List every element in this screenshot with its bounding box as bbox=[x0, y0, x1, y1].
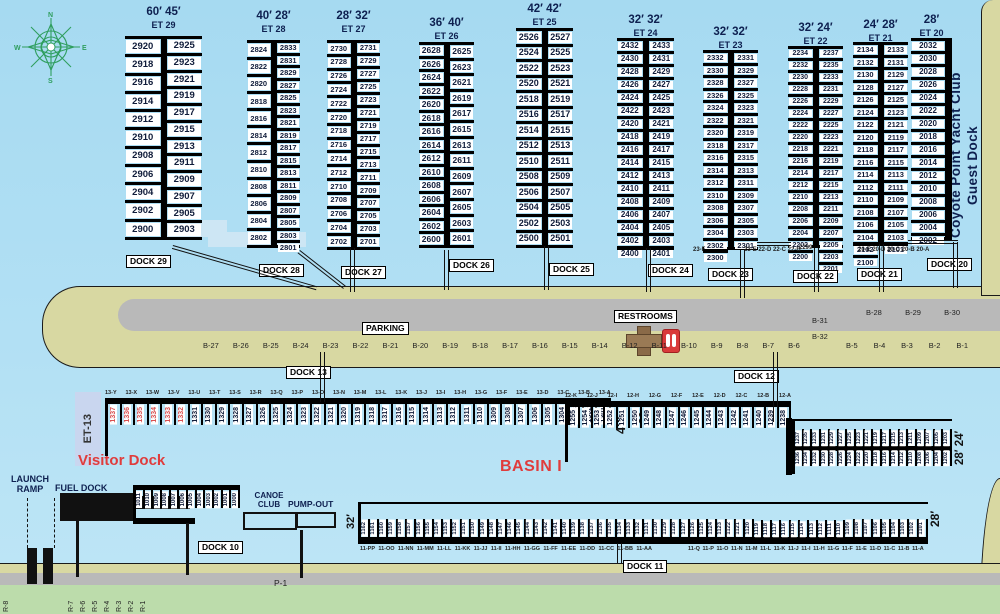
slip-number: 2229 bbox=[820, 98, 843, 105]
slip-number: 1248 bbox=[656, 408, 663, 428]
slip-number: 2918 bbox=[126, 58, 160, 71]
slip-number: 2728 bbox=[328, 58, 350, 67]
slip-cell: 2517 bbox=[548, 106, 574, 122]
slip-number: 2217 bbox=[820, 170, 843, 177]
slip-cell: 1308 bbox=[502, 404, 516, 425]
slip-number: 2316 bbox=[704, 154, 727, 162]
slip-cell: 1331 bbox=[190, 404, 204, 425]
slip-number: 1011 bbox=[136, 491, 142, 508]
slip-cell: 2718 bbox=[327, 123, 351, 137]
slip-number: 1006 bbox=[180, 491, 186, 508]
slip-number: 1306 bbox=[532, 405, 539, 425]
slip-cell: 1132 bbox=[635, 519, 644, 537]
slip-cell: 1111 bbox=[827, 520, 836, 537]
slip-number: 2710 bbox=[328, 182, 350, 191]
slip-number: 2807 bbox=[278, 207, 300, 215]
slip-number: 2030 bbox=[912, 55, 944, 63]
slip-cell: 1246 bbox=[680, 407, 692, 428]
slip-letter-label: 11-H bbox=[813, 546, 825, 552]
slip-letter-label: 11-J bbox=[788, 546, 799, 552]
slip-cell: 2120 bbox=[853, 130, 878, 143]
slip-cell: 2213 bbox=[819, 190, 844, 202]
comb-dock: 1255125412531252125112501249124812471246… bbox=[565, 401, 791, 462]
slip-cell: 2621 bbox=[450, 73, 475, 89]
slip-cell: 2618 bbox=[419, 110, 444, 124]
slip-cell: 2721 bbox=[357, 105, 381, 118]
slip-cell: 2308 bbox=[703, 200, 728, 213]
slip-cell: 2717 bbox=[357, 131, 381, 144]
b-spot-label: B-2 bbox=[929, 341, 941, 350]
slip-letter-label: 13-E bbox=[516, 390, 528, 396]
slip-number: 1220 bbox=[865, 450, 871, 466]
slip-cell: 2413 bbox=[649, 168, 675, 181]
b-spot-label: B-15 bbox=[562, 341, 578, 350]
dock-width-header: 60′ 45′ bbox=[107, 6, 220, 18]
slip-number: 2417 bbox=[650, 146, 674, 154]
walkway bbox=[773, 352, 778, 422]
slip-cell: 2403 bbox=[649, 233, 675, 246]
slip-cell: 2219 bbox=[819, 154, 844, 166]
slip-cell: 1001 bbox=[223, 490, 232, 508]
slip-number: 2331 bbox=[735, 54, 758, 62]
slip-cell: 2105 bbox=[884, 217, 909, 230]
slip-number: 2818 bbox=[248, 95, 270, 107]
b-spot-label: B-16 bbox=[532, 341, 548, 350]
slip-number: 2708 bbox=[328, 196, 350, 205]
slip-cell: 1322 bbox=[312, 404, 326, 425]
b-spot-label: B-32 bbox=[812, 329, 828, 345]
slip-number: 1132 bbox=[636, 520, 642, 537]
slip-cell: 1252 bbox=[605, 407, 617, 428]
dock-slip-columns: 2526252425222520251825162514251225102508… bbox=[516, 28, 573, 248]
slip-number: 2919 bbox=[168, 90, 202, 102]
slip-number: 2117 bbox=[885, 146, 908, 154]
slip-number: 1305 bbox=[545, 405, 552, 425]
slip-number: 2116 bbox=[854, 159, 877, 167]
slip-number: 1111 bbox=[828, 521, 834, 537]
b-spot-label: B-3 bbox=[901, 341, 913, 350]
slip-cell: 2216 bbox=[788, 154, 813, 166]
slip-number: 2517 bbox=[549, 110, 573, 121]
slip-letter-label: 11-F bbox=[842, 546, 853, 552]
slip-number: 1331 bbox=[192, 405, 199, 425]
pier-pile bbox=[76, 521, 79, 577]
slip-number: 2900 bbox=[126, 223, 160, 236]
slip-cell: 2430 bbox=[617, 51, 643, 64]
slip-number: 2717 bbox=[358, 135, 380, 143]
slip-number: 2913 bbox=[168, 141, 202, 153]
slip-cell: 2313 bbox=[734, 163, 759, 176]
slip-number: 2207 bbox=[820, 230, 843, 237]
slip-cell: 2104 bbox=[853, 230, 878, 243]
r-spot-label: R-8 bbox=[3, 588, 10, 612]
slip-number: 2016 bbox=[912, 146, 944, 154]
slip-number: 2026 bbox=[912, 81, 944, 89]
slip-number: 1233 bbox=[813, 430, 819, 446]
slip-number: 1149 bbox=[481, 520, 487, 537]
slip-cell: 2326 bbox=[703, 88, 728, 101]
slip-cell: 2821 bbox=[277, 115, 301, 128]
slip-cell: 2131 bbox=[884, 55, 909, 68]
slip-cell: 2705 bbox=[357, 208, 381, 221]
slip-number: 2234 bbox=[789, 50, 812, 57]
slip-number: 1208 bbox=[918, 450, 924, 466]
slip-cell: 1335 bbox=[135, 404, 149, 425]
slip-letter-label: 13-U bbox=[188, 390, 200, 396]
slip-cell: 2617 bbox=[450, 104, 475, 120]
slip-cell: 2309 bbox=[734, 188, 759, 201]
slip-cell: 2129 bbox=[884, 67, 909, 80]
slip-number: 1153 bbox=[444, 520, 450, 537]
comb-dock: 1162116111601159115811571156115511541153… bbox=[358, 502, 928, 544]
slip-cell: 2500 bbox=[516, 230, 542, 246]
slip-cell: 2416 bbox=[617, 142, 643, 155]
slip-cell: 2317 bbox=[734, 138, 759, 151]
slip-cell: 1005 bbox=[188, 490, 197, 508]
slip-cell: 1311 bbox=[461, 404, 475, 424]
slip-cell: 2405 bbox=[649, 220, 675, 233]
slip-cell: 2605 bbox=[450, 198, 475, 214]
slip-number: 2006 bbox=[912, 211, 944, 219]
slip-cell: 2126 bbox=[853, 92, 878, 105]
slip-cell: 2223 bbox=[819, 130, 844, 142]
b-spot-label: B-1 bbox=[956, 341, 968, 350]
slip-number: 2230 bbox=[789, 74, 812, 81]
slip-cell: 2225 bbox=[819, 118, 844, 130]
slip-cell: 2320 bbox=[703, 125, 728, 138]
slip-cell: 2819 bbox=[277, 128, 301, 141]
slip-teeth-row: 1337133613351334133313321331133013291328… bbox=[105, 404, 611, 456]
slip-cell: 2006 bbox=[911, 207, 945, 220]
slip-cell: 1249 bbox=[642, 407, 654, 428]
slip-cell: 2424 bbox=[617, 90, 643, 103]
slip-number: 2014 bbox=[912, 159, 944, 167]
slip-letter-label: 13-M bbox=[354, 390, 367, 396]
dock-name-label: DOCK 27 bbox=[341, 266, 386, 279]
slip-number: 1143 bbox=[535, 520, 541, 537]
slip-cell: 2208 bbox=[788, 202, 813, 214]
slip-cell: 2418 bbox=[617, 129, 643, 142]
dock-et-label: ET 27 bbox=[317, 24, 390, 34]
slip-cell: 2312 bbox=[703, 175, 728, 188]
slip-cell: 2004 bbox=[911, 220, 945, 233]
slip-number: 2130 bbox=[854, 71, 877, 79]
slip-number: 2613 bbox=[451, 140, 474, 151]
slip-number: 2619 bbox=[451, 93, 474, 104]
right-shore bbox=[981, 0, 1000, 296]
dock-slip-columns: 2920291829162914291229102908290629042902… bbox=[125, 36, 202, 240]
dock-slip-columns: 2332233023282326232423222320231823162314… bbox=[703, 50, 758, 250]
dock-width-header: 32′ 32′ bbox=[599, 14, 692, 26]
slip-number: 2703 bbox=[358, 225, 380, 233]
slip-number: 2915 bbox=[168, 124, 202, 136]
slip-number: 2808 bbox=[248, 181, 270, 193]
dock-slip-columns: 2628262626242622262026182616261426122610… bbox=[419, 42, 474, 248]
slip-number: 2422 bbox=[618, 107, 642, 115]
slip-number: 2521 bbox=[549, 79, 573, 90]
slip-cell: 2330 bbox=[703, 63, 728, 76]
slip-cell: 1149 bbox=[480, 519, 489, 537]
slip-cell: 2704 bbox=[327, 219, 351, 233]
slip-number: 2626 bbox=[420, 60, 443, 69]
slip-number: 1231 bbox=[822, 430, 828, 446]
slip-cell: 2134 bbox=[853, 42, 878, 55]
comb-dock: 1011101010091008100710061005100410031002… bbox=[133, 485, 240, 523]
slip-number: 1308 bbox=[505, 405, 512, 425]
slip-number: 2618 bbox=[420, 114, 443, 123]
slip-cell: 1120 bbox=[745, 519, 754, 537]
slip-number: 2518 bbox=[517, 94, 541, 105]
b-spot-label: B-22 bbox=[353, 341, 369, 350]
slip-letter-label: 11-DD bbox=[580, 546, 596, 552]
slip-number: 2806 bbox=[248, 198, 270, 210]
slip-number: 1154 bbox=[435, 520, 441, 537]
slip-number: 2423 bbox=[650, 107, 674, 115]
slip-number: 2620 bbox=[420, 100, 443, 109]
slip-number: 2129 bbox=[885, 71, 908, 79]
slip-number: 2600 bbox=[420, 235, 443, 244]
dock-footer-label: 23-F bbox=[693, 247, 705, 253]
slip-number: 2214 bbox=[789, 170, 812, 177]
slip-number: 2704 bbox=[328, 223, 350, 232]
slip-cell: 1004 bbox=[197, 490, 206, 508]
slip-number: 2211 bbox=[820, 206, 843, 213]
slip-cell: 2212 bbox=[788, 178, 813, 190]
slip-cell: 2220 bbox=[788, 130, 813, 142]
slip-cell: 1127 bbox=[681, 519, 690, 537]
slip-cell: 1107 bbox=[864, 519, 873, 537]
slip-number: 2506 bbox=[517, 187, 541, 198]
slip-number: 2719 bbox=[358, 122, 380, 130]
slip-cell: 1227 bbox=[839, 429, 848, 446]
slip-number: 2512 bbox=[517, 141, 541, 152]
slip-number: 2424 bbox=[618, 94, 642, 102]
slip-cell: 2917 bbox=[167, 103, 203, 120]
slip-number: 1107 bbox=[864, 520, 870, 537]
dock-name-label: DOCK 23 bbox=[708, 268, 753, 281]
slip-number: 1250 bbox=[632, 408, 639, 428]
walkway bbox=[320, 352, 325, 402]
slip-number: 2328 bbox=[704, 79, 727, 87]
slip-cell: 1114 bbox=[800, 520, 809, 537]
slip-cell: 1334 bbox=[149, 404, 163, 425]
slip-cell: 2920 bbox=[125, 36, 161, 54]
slip-number: 2515 bbox=[549, 125, 573, 136]
slip-number: 1326 bbox=[260, 405, 267, 425]
slip-cell: 1007 bbox=[171, 490, 180, 508]
slip-column: 2433243124292427242524232421241924172415… bbox=[649, 38, 675, 250]
slip-cell: 2804 bbox=[247, 211, 271, 228]
slip-cell: 1003 bbox=[205, 490, 214, 508]
slip-number: 1310 bbox=[477, 405, 484, 425]
slip-column: 2628262626242622262026182616261426122610… bbox=[419, 42, 444, 248]
dock-name-label: DOCK 24 bbox=[648, 264, 693, 277]
slip-cell: 2623 bbox=[450, 58, 475, 74]
slip-number: 2817 bbox=[278, 144, 300, 152]
slip-cell: 2118 bbox=[853, 142, 878, 155]
slip-number: 1002 bbox=[214, 491, 220, 508]
slip-cell: 1008 bbox=[162, 490, 171, 508]
slip-cell: 2608 bbox=[419, 177, 444, 191]
slip-number: 2917 bbox=[168, 107, 202, 119]
slip-cell: 2925 bbox=[167, 36, 203, 53]
slip-number: 2431 bbox=[650, 55, 674, 63]
slip-number: 2923 bbox=[168, 57, 202, 69]
slip-number: 2603 bbox=[451, 218, 474, 229]
slip-number: 1244 bbox=[706, 408, 713, 428]
slip-number: 2223 bbox=[820, 134, 843, 141]
slip-cell: 2100 bbox=[853, 255, 878, 268]
slip-number: 2308 bbox=[704, 204, 727, 212]
slip-number: 1237 bbox=[796, 430, 802, 446]
b-spot-label: B-6 bbox=[788, 341, 800, 350]
slip-number: 2319 bbox=[735, 129, 758, 137]
slip-cell: 1154 bbox=[434, 519, 443, 537]
slip-number: 1142 bbox=[544, 520, 550, 537]
slip-cell: 2825 bbox=[277, 90, 301, 103]
slip-number: 1136 bbox=[599, 520, 605, 537]
slip-cell: 1307 bbox=[516, 404, 530, 425]
slip-cell: 2729 bbox=[357, 53, 381, 66]
slip-number: 2612 bbox=[420, 154, 443, 163]
slip-number: 1005 bbox=[188, 491, 194, 508]
slip-cell: 2626 bbox=[419, 56, 444, 70]
slip-cell: 2814 bbox=[247, 125, 271, 142]
dock-et-label: ET 28 bbox=[237, 24, 310, 34]
slip-cell: 2204 bbox=[788, 226, 813, 238]
slip-cell: 2431 bbox=[649, 51, 675, 64]
slip-number: 1255 bbox=[570, 408, 577, 428]
slip-number: 1148 bbox=[490, 520, 496, 537]
slip-number: 2916 bbox=[126, 77, 160, 90]
slip-number: 2012 bbox=[912, 172, 944, 180]
slip-number: 2524 bbox=[517, 48, 541, 59]
slip-number: 1204 bbox=[935, 450, 941, 466]
slip-cell: 2720 bbox=[327, 109, 351, 123]
slip-letter-label: 11-FF bbox=[543, 546, 557, 552]
slip-number: 2126 bbox=[854, 96, 877, 104]
slip-cell: 2719 bbox=[357, 118, 381, 131]
slip-number: 1109 bbox=[846, 520, 852, 537]
slip-cell: 2425 bbox=[649, 90, 675, 103]
slip-number: 2801 bbox=[278, 244, 300, 252]
slip-cell: 2708 bbox=[327, 192, 351, 206]
slip-cell: 2415 bbox=[649, 155, 675, 168]
slip-number: 2718 bbox=[328, 127, 350, 136]
b-spots-mid: B-31B-32 bbox=[812, 313, 828, 345]
slip-cell: 2323 bbox=[734, 100, 759, 113]
slip-number: 2716 bbox=[328, 141, 350, 150]
slip-cell: 1240 bbox=[754, 407, 766, 428]
slip-cell: 1327 bbox=[244, 404, 258, 425]
slip-number: 2903 bbox=[168, 224, 202, 236]
slip-cell: 1119 bbox=[754, 520, 763, 537]
slip-column: 2824282228202818281628142812281028082806… bbox=[247, 40, 271, 248]
slip-cell: 2218 bbox=[788, 142, 813, 154]
dock-footer-label: 23-E 22-D 22-C 22-B bbox=[744, 247, 801, 253]
slip-number: 2727 bbox=[358, 70, 380, 78]
slip-cell: 1148 bbox=[489, 519, 498, 537]
slip-cell: 2421 bbox=[649, 116, 675, 129]
slip-number: 2133 bbox=[885, 46, 908, 54]
slip-cell: 1205 bbox=[935, 429, 944, 446]
slip-cell: 2612 bbox=[419, 150, 444, 164]
slip-cell: 2525 bbox=[548, 44, 574, 60]
b-spot-label: B-27 bbox=[203, 341, 219, 350]
slip-number: 2312 bbox=[704, 179, 727, 187]
slip-cell: 2601 bbox=[450, 229, 475, 245]
slip-cell: 1211 bbox=[908, 429, 917, 446]
slip-cell: 2020 bbox=[911, 116, 945, 129]
slip-number: 2606 bbox=[420, 195, 443, 204]
slip-cell: 2106 bbox=[853, 217, 878, 230]
slip-number: 2203 bbox=[820, 254, 843, 261]
slip-number: 1147 bbox=[499, 520, 505, 537]
slip-cell: 1128 bbox=[672, 519, 681, 537]
slip-cell: 2918 bbox=[125, 54, 161, 72]
slip-cell: 1104 bbox=[891, 519, 900, 537]
slip-cell: 2410 bbox=[617, 181, 643, 194]
slip-cell: 1321 bbox=[326, 404, 340, 425]
slip-number: 2226 bbox=[789, 98, 812, 105]
compass-rose-icon: N E S W bbox=[14, 10, 88, 84]
slip-teeth-row: 1162116111601159115811571156115511541153… bbox=[358, 504, 928, 537]
slip-cell: 2523 bbox=[548, 59, 574, 75]
slip-number: 2811 bbox=[278, 182, 300, 190]
slip-number: 1245 bbox=[694, 408, 701, 428]
slip-cell: 2030 bbox=[911, 51, 945, 64]
slip-cell: 2811 bbox=[277, 178, 301, 191]
compass-n: N bbox=[48, 12, 53, 19]
slip-column: 2331232923272325232323212319231723152313… bbox=[734, 50, 759, 250]
slip-number: 2415 bbox=[650, 159, 674, 167]
slip-cell: 2214 bbox=[788, 166, 813, 178]
slip-cell: 2233 bbox=[819, 70, 844, 82]
b-spot-label: B-28 bbox=[866, 308, 882, 317]
slip-number: 2511 bbox=[549, 156, 573, 167]
slip-number: 2225 bbox=[820, 122, 843, 129]
slip-cell: 2526 bbox=[516, 28, 542, 44]
slip-number: 2219 bbox=[820, 158, 843, 165]
slip-cell: 2010 bbox=[911, 181, 945, 194]
slip-number: 1327 bbox=[246, 405, 253, 425]
b-spot-label: B-9 bbox=[711, 341, 723, 350]
slip-number: 2404 bbox=[618, 224, 642, 232]
slip-letter-row: 11-PP11-OO11-NN11-MM11-LL11-KK11-JJ11-II… bbox=[360, 546, 652, 552]
walkway bbox=[879, 244, 884, 292]
slip-cell: 1150 bbox=[471, 519, 480, 537]
slip-number: 1249 bbox=[644, 408, 651, 428]
compass-s: S bbox=[48, 78, 53, 84]
slip-number: 2726 bbox=[328, 72, 350, 81]
slip-number: 2621 bbox=[451, 77, 474, 88]
slip-number: 1209 bbox=[918, 430, 924, 446]
slip-number: 2729 bbox=[358, 57, 380, 65]
slip-number: 2421 bbox=[650, 120, 674, 128]
slip-cell: 2817 bbox=[277, 140, 301, 153]
slip-number: 1151 bbox=[462, 520, 468, 537]
slip-number: 1122 bbox=[727, 520, 733, 537]
walkway bbox=[646, 248, 651, 292]
slip-number: 1315 bbox=[409, 405, 416, 425]
slip-cell: 2613 bbox=[450, 136, 475, 152]
slip-number: 2607 bbox=[451, 186, 474, 197]
slip-letter-label: 13-L bbox=[375, 390, 386, 396]
slip-cell: 2900 bbox=[125, 219, 161, 237]
slip-cell: 2507 bbox=[548, 183, 574, 199]
b-spots-upper: B-28B-29B-30 bbox=[866, 308, 960, 317]
slip-number: 1129 bbox=[663, 520, 669, 537]
